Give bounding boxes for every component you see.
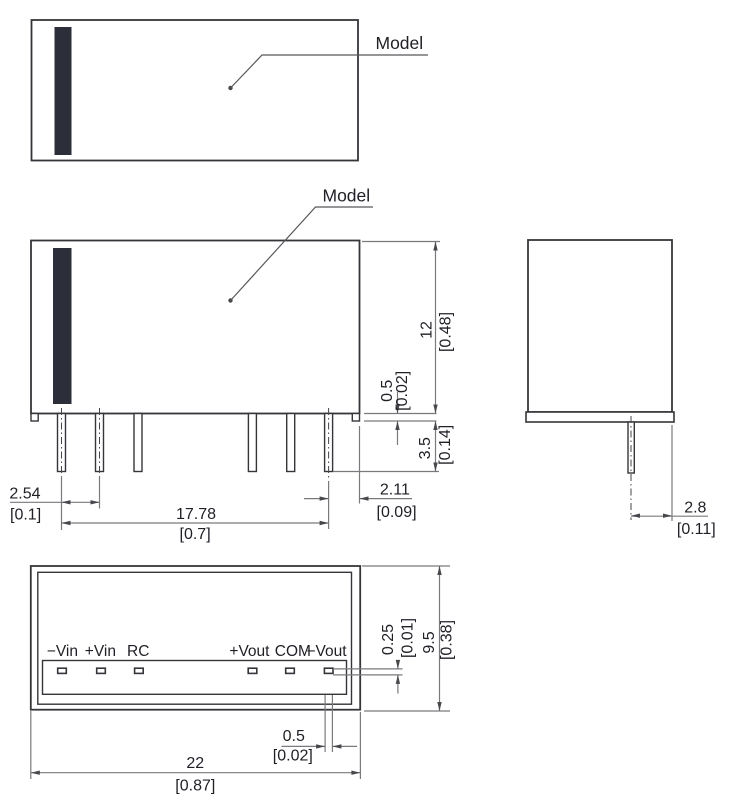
svg-text:9.5: 9.5 [421,631,438,653]
svg-text:RC: RC [127,643,149,660]
svg-text:0.5: 0.5 [283,728,305,745]
svg-text:[0.01]: [0.01] [400,618,417,658]
svg-text:12: 12 [418,321,435,339]
svg-text:Model: Model [323,185,371,205]
svg-text:[0.38]: [0.38] [439,620,456,660]
svg-text:2.8: 2.8 [684,499,706,516]
svg-text:−Vout: −Vout [307,643,348,660]
svg-text:2.54: 2.54 [9,486,40,503]
svg-text:17.78: 17.78 [176,506,216,523]
svg-text:2.11: 2.11 [380,481,410,498]
svg-text:[0.1]: [0.1] [10,507,41,524]
svg-text:+Vin: +Vin [85,643,116,660]
svg-text:[0.11]: [0.11] [677,521,716,538]
svg-text:[0.09]: [0.09] [377,504,417,521]
svg-text:3.5: 3.5 [417,437,434,459]
svg-text:[0.14]: [0.14] [437,425,454,465]
svg-text:[0.02]: [0.02] [273,748,313,765]
svg-text:+Vout: +Vout [229,643,270,660]
svg-text:[0.87]: [0.87] [175,778,215,795]
svg-text:−Vin: −Vin [47,643,78,660]
svg-text:22: 22 [186,755,204,772]
svg-text:Model: Model [376,33,424,53]
svg-text:[0.48]: [0.48] [438,312,455,352]
svg-text:0.25: 0.25 [380,624,397,655]
svg-text:[0.7]: [0.7] [180,526,211,543]
svg-text:[0.02]: [0.02] [394,371,411,411]
